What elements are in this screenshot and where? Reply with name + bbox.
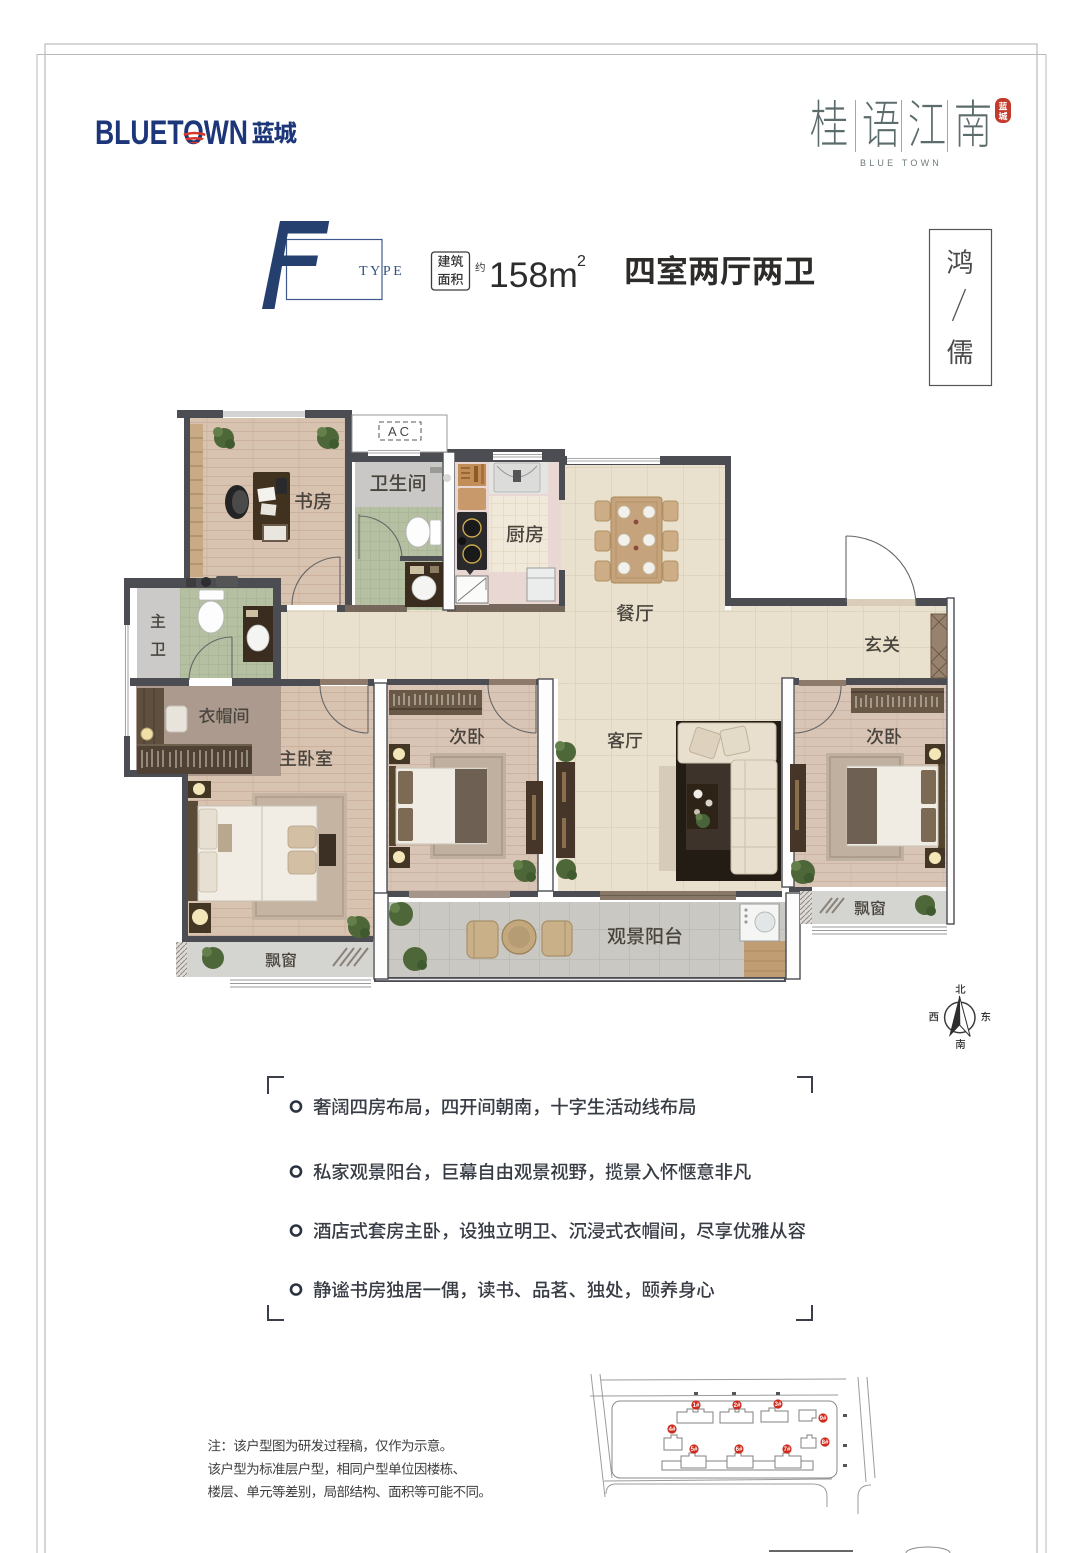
svg-text:7#: 7# bbox=[784, 1447, 791, 1453]
svg-text:2: 2 bbox=[577, 253, 586, 270]
svg-text:9#: 9# bbox=[820, 1416, 827, 1422]
svg-text:AC: AC bbox=[388, 424, 412, 439]
svg-text:3#: 3# bbox=[775, 1402, 782, 1408]
svg-text:8#: 8# bbox=[822, 1440, 829, 1446]
svg-text:5#: 5# bbox=[691, 1447, 698, 1453]
svg-text:6#: 6# bbox=[736, 1447, 743, 1453]
svg-text:158m: 158m bbox=[489, 255, 578, 295]
svg-text:BLUE TOWN: BLUE TOWN bbox=[860, 158, 942, 168]
svg-text:1#: 1# bbox=[693, 1403, 700, 1409]
svg-text:4#: 4# bbox=[669, 1427, 676, 1433]
svg-text:TYPE: TYPE bbox=[359, 264, 404, 279]
svg-text:2#: 2# bbox=[734, 1403, 741, 1409]
svg-text:BLUETOWN: BLUETOWN bbox=[95, 114, 248, 152]
